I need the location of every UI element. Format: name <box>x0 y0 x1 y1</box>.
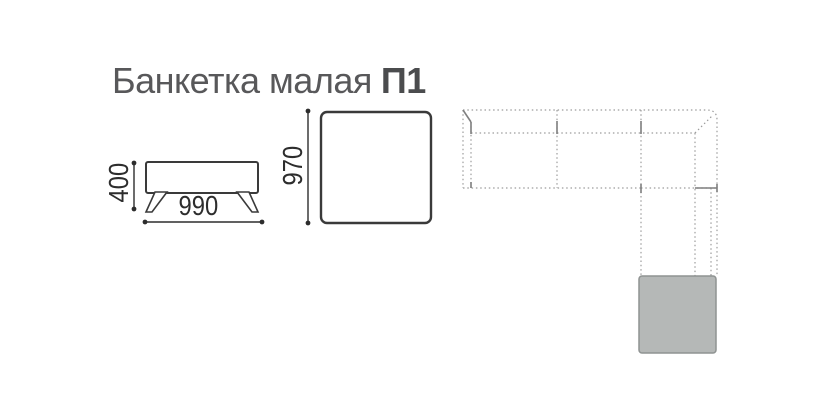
bench-body-outline <box>146 162 258 193</box>
height-dimension-value: 400 <box>103 163 135 203</box>
dimension-dot <box>306 221 311 226</box>
depth-dimension-value: 970 <box>277 146 309 186</box>
dimension-dot <box>143 220 148 225</box>
width-dimension-value: 990 <box>178 192 218 220</box>
dimension-dot <box>260 220 265 225</box>
sectional-layout-schematic <box>463 110 717 353</box>
bench-top-outline <box>321 112 431 223</box>
sectional-seam-ticks <box>463 110 717 193</box>
width-dimension-label: 990 <box>158 192 238 220</box>
bench-right-leg <box>237 192 258 212</box>
sectional-dashed-outline <box>463 110 717 276</box>
dimension-dot <box>306 109 311 114</box>
top-view-drawing <box>306 109 431 226</box>
height-dimension-label: 400 <box>103 143 135 223</box>
depth-dimension-label: 970 <box>277 126 309 206</box>
highlighted-module <box>639 276 716 353</box>
catalog-diagram-page: Банкетка малаяП1 <box>0 0 840 420</box>
